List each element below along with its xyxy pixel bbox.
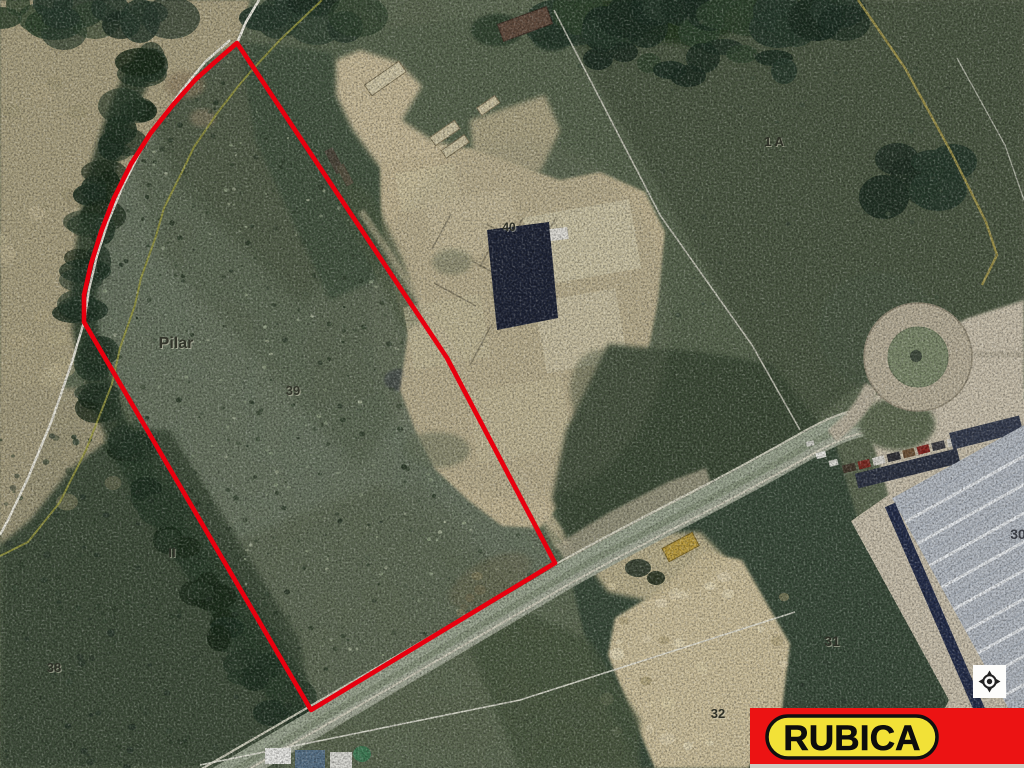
svg-text:Pilar: Pilar	[159, 335, 194, 352]
svg-text:31: 31	[824, 633, 840, 649]
svg-text:II: II	[168, 545, 175, 560]
svg-text:30: 30	[1010, 526, 1024, 542]
svg-text:38: 38	[47, 660, 61, 675]
svg-text:39: 39	[286, 383, 300, 398]
svg-text:1 A: 1 A	[764, 134, 784, 149]
svg-text:40: 40	[502, 220, 516, 234]
svg-text:32: 32	[711, 706, 725, 721]
svg-text:RUBICA: RUBICA	[783, 719, 920, 758]
